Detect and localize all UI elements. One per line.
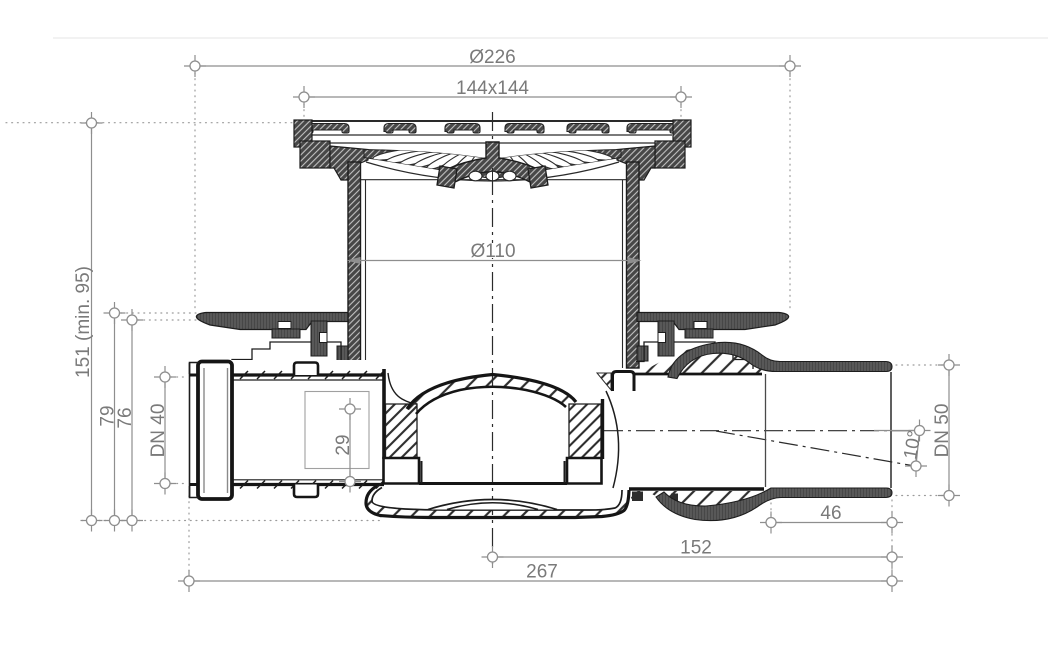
svg-text:46: 46	[820, 503, 841, 524]
svg-text:DN 40: DN 40	[148, 404, 169, 458]
svg-text:Ø110: Ø110	[470, 241, 515, 262]
svg-text:152: 152	[680, 538, 712, 559]
svg-text:Ø226: Ø226	[469, 47, 515, 68]
svg-text:29: 29	[333, 434, 354, 455]
svg-text:76: 76	[115, 407, 136, 428]
svg-text:151 (min. 95): 151 (min. 95)	[73, 266, 94, 378]
svg-text:DN 50: DN 50	[932, 404, 953, 458]
svg-text:144x144: 144x144	[456, 78, 529, 99]
svg-text:267: 267	[526, 562, 558, 583]
